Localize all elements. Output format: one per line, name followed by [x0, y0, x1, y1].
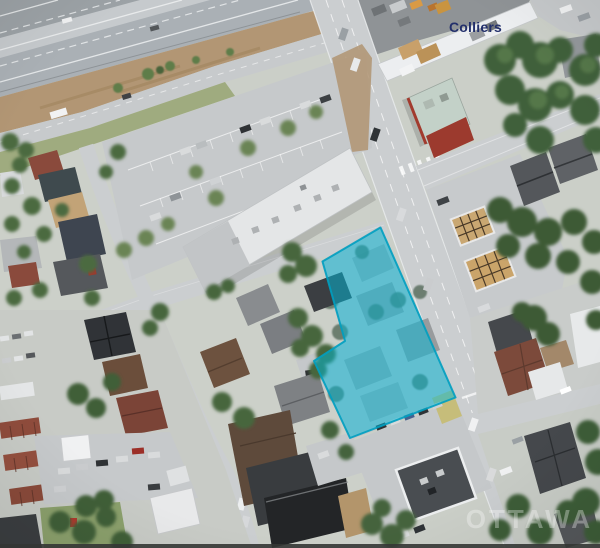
photo-vignette [0, 0, 600, 548]
aerial-map-screenshot: Colliers OTTAWA [0, 0, 600, 548]
bottom-edge-strip [0, 544, 600, 548]
satellite-map-canvas[interactable]: Colliers OTTAWA [0, 0, 600, 548]
ottawa-watermark: OTTAWA [466, 504, 593, 534]
colliers-logo: Colliers [449, 19, 502, 35]
